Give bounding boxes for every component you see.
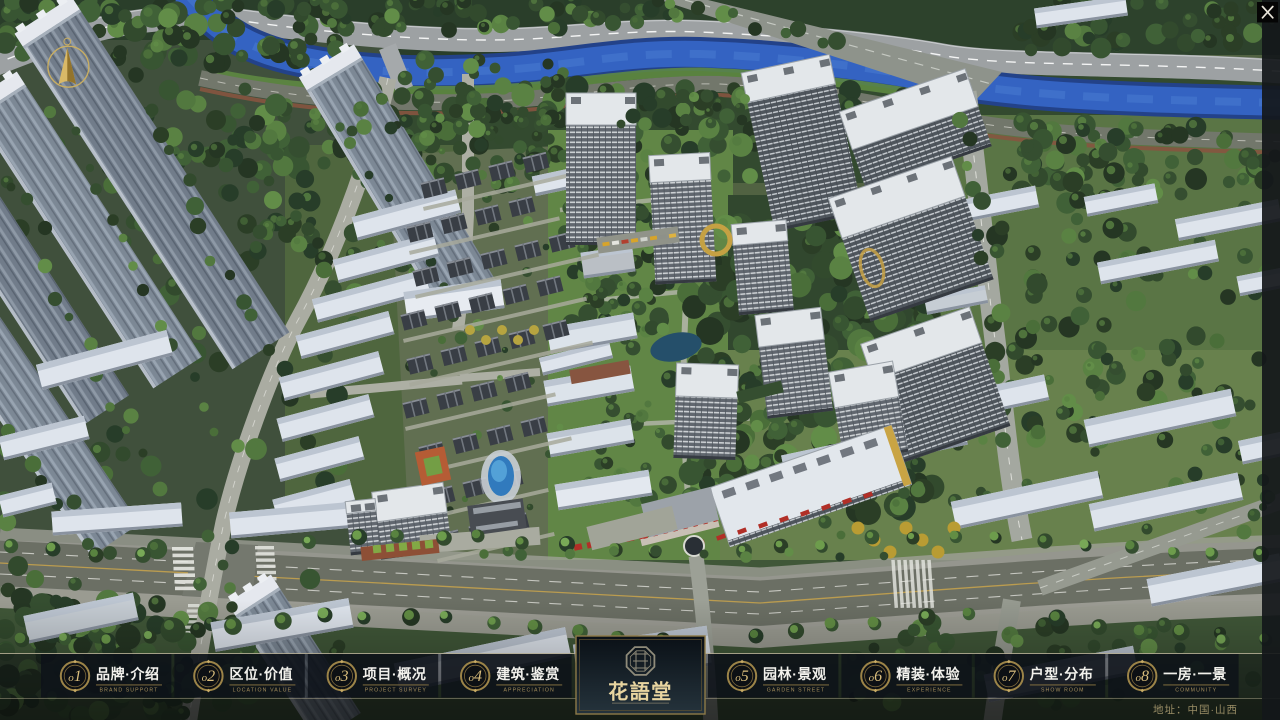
svg-text:BRAND SUPPORT: BRAND SUPPORT <box>100 688 159 694</box>
svg-text:EXPERIENCE: EXPERIENCE <box>907 688 951 694</box>
svg-text:地址：中国·山西: 地址：中国·山西 <box>1153 703 1238 716</box>
svg-text:APPRECIATION: APPRECIATION <box>503 688 554 694</box>
svg-text:建筑·鉴赏: 建筑·鉴赏 <box>496 666 560 682</box>
svg-text:园林·景观: 园林·景观 <box>763 666 827 682</box>
svg-text:LOCATION VALUE: LOCATION VALUE <box>233 688 293 694</box>
svg-text:项目·概况: 项目·概况 <box>363 666 427 682</box>
svg-text:SHOW ROOM: SHOW ROOM <box>1041 688 1085 694</box>
svg-text:COMMUNITY: COMMUNITY <box>1175 688 1217 694</box>
svg-text:品牌·介绍: 品牌·介绍 <box>96 666 160 682</box>
svg-text:区位·价值: 区位·价值 <box>229 666 293 682</box>
svg-text:户型·分布: 户型·分布 <box>1030 666 1094 682</box>
svg-text:GARDEN STREET: GARDEN STREET <box>767 688 825 694</box>
svg-text:花語堂: 花語堂 <box>608 680 673 704</box>
svg-text:精装·体验: 精装·体验 <box>896 666 960 682</box>
svg-text:PROJECT SURVEY: PROJECT SURVEY <box>365 688 427 694</box>
svg-text:一房·一景: 一房·一景 <box>1163 666 1227 682</box>
